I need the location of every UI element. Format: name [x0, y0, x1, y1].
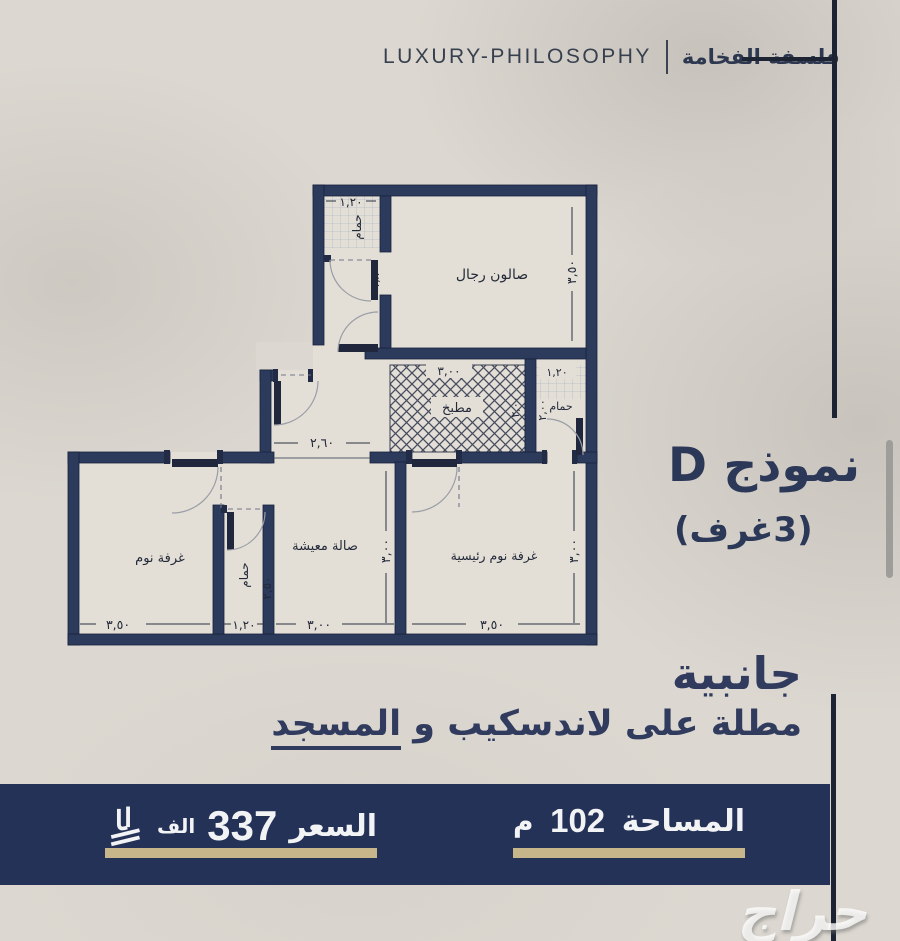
- haraj-watermark: حراج: [734, 880, 880, 941]
- price-label: السعر: [289, 809, 377, 844]
- price-gold-underline: [105, 848, 377, 858]
- description-view: مطلة على لاندسكيب و المسجد: [271, 704, 802, 744]
- area-value: 102: [550, 802, 605, 840]
- label-bedroom: غرفة نوم: [135, 551, 185, 566]
- dim-living-h: ٣,٠٠: [378, 539, 393, 563]
- dim-kitchen-w: ٣,٠٠: [437, 364, 460, 378]
- brand-name-en: LUXURY-PHILOSOPHY: [383, 45, 652, 69]
- dim-kitchen-h: ٢,٠٠: [509, 396, 522, 417]
- header-divider: [666, 40, 668, 74]
- label-living: صالة معيشة: [292, 539, 358, 554]
- label-salon: صالون رجال: [456, 267, 528, 283]
- area-label: المساحة: [622, 804, 745, 839]
- dim-master-w: ٣,٥٠: [480, 617, 504, 632]
- dim-bath-top-h: ١,٨٠: [369, 267, 382, 288]
- price-value: 337: [207, 802, 277, 850]
- label-kitchen: مطبخ: [442, 401, 472, 416]
- description-view-text: مطلة على لاندسكيب و: [401, 704, 802, 744]
- model-rooms-count: (3غرف): [674, 510, 860, 550]
- price-group: السعر 337 الف: [105, 802, 377, 850]
- dim-bath-mid-w: ١,٢٠: [232, 618, 255, 632]
- label-master: غرفة نوم رئيسية: [451, 548, 538, 564]
- description-block: جانبية مطلة على لاندسكيب و المسجد: [271, 648, 802, 744]
- area-group: المساحة 102 م: [513, 802, 745, 840]
- dim-bedroom-w: ٣,٥٠: [106, 617, 130, 632]
- model-name: نموذج D: [668, 440, 860, 492]
- dim-bath-mid-h: ٢,٥٠: [260, 576, 274, 599]
- dim-bath-top-w: ١,٢٠: [339, 195, 362, 209]
- dim-bath-right-h: ٢,٠٠: [536, 399, 549, 420]
- header-rule-line: [742, 57, 836, 61]
- description-view-underlined: المسجد: [271, 704, 401, 750]
- right-frame-line-top: [832, 0, 837, 418]
- flyer-page: LUXURY-PHILOSOPHY فلسفة الفخامة: [0, 0, 900, 941]
- dim-master-h: ٣,٠٠: [566, 539, 581, 563]
- area-unit: م: [513, 805, 534, 838]
- dim-hall-w: ٢,٦٠: [310, 435, 334, 450]
- footer-bar: المساحة 102 م السعر 337 الف: [0, 784, 830, 885]
- label-bath-right: حمام: [549, 400, 572, 413]
- saudi-riyal-symbol-icon: [105, 805, 145, 847]
- model-accent-bar: [886, 440, 893, 578]
- floor-plan: حمام صالون رجال مطبخ حمام غرفة نوم حمام …: [60, 175, 600, 655]
- area-gold-underline: [513, 848, 745, 858]
- label-bath-top: حمام: [350, 214, 364, 239]
- model-block: نموذج D (3غرف): [668, 440, 860, 550]
- dim-bath-right-w: ١,٢٠: [546, 366, 567, 379]
- price-unit: الف: [157, 814, 195, 838]
- dim-salon-h: ٣,٥٠: [564, 260, 579, 284]
- label-bath-mid: حمام: [237, 562, 251, 587]
- description-orientation: جانبية: [271, 648, 802, 700]
- dim-living-w: ٣,٠٠: [307, 617, 331, 632]
